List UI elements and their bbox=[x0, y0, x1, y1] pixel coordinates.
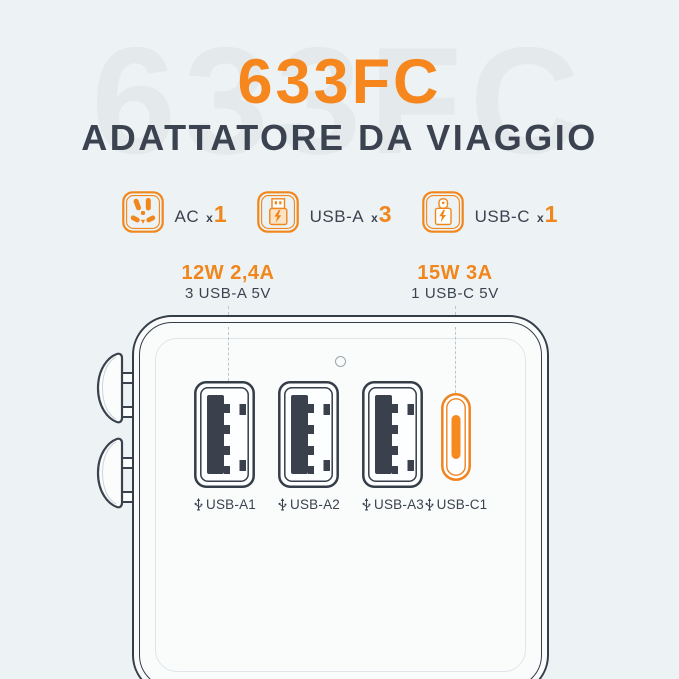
usb-c1-label: USB-C1 bbox=[411, 497, 501, 512]
feature-usb-a-times: x bbox=[371, 211, 378, 225]
usb-c-power: 15W 3A bbox=[355, 262, 555, 284]
usb-trident-icon bbox=[194, 498, 203, 511]
usb-c-icon bbox=[422, 191, 464, 238]
usb-c-leader-line bbox=[455, 327, 456, 393]
usb-a3-port bbox=[362, 381, 423, 493]
usb-a-spec-callout: 12W 2,4A 3 USB-A 5V bbox=[128, 262, 328, 303]
product-infographic: 633FC 633FC ADATTATORE DA VIAGGIO bbox=[0, 0, 679, 679]
feature-usb-c: USB-C x 1 bbox=[422, 191, 558, 238]
feature-usb-c-count: 1 bbox=[545, 201, 558, 228]
usb-a1-port bbox=[194, 381, 255, 493]
usb-c1-port bbox=[441, 393, 471, 486]
usb-a1-label: USB-A1 bbox=[180, 497, 270, 512]
usb-c-spec-callout: 15W 3A 1 USB-C 5V bbox=[355, 262, 555, 303]
status-led bbox=[335, 356, 346, 367]
usb-a2-label: USB-A2 bbox=[264, 497, 354, 512]
feature-usb-a-count: 3 bbox=[379, 201, 392, 228]
usb-trident-icon bbox=[278, 498, 287, 511]
feature-usb-a: USB-A x 3 bbox=[257, 191, 392, 238]
feature-usb-a-label: USB-A bbox=[310, 207, 364, 227]
usb-c-leader-line bbox=[455, 306, 456, 315]
usb-c-detail: 1 USB-C 5V bbox=[355, 285, 555, 303]
feature-badges: AC x 1 USB-A x 3 bbox=[0, 191, 679, 238]
usb-trident-icon bbox=[425, 498, 434, 511]
usb-trident-icon bbox=[362, 498, 371, 511]
usb-a-icon bbox=[257, 191, 299, 238]
usb-a-leader-line bbox=[228, 327, 229, 381]
usb-a-power: 12W 2,4A bbox=[128, 262, 328, 284]
feature-ac: AC x 1 bbox=[122, 191, 227, 238]
feature-ac-label: AC bbox=[175, 207, 200, 227]
feature-usb-c-label: USB-C bbox=[475, 207, 530, 227]
feature-ac-count: 1 bbox=[214, 201, 227, 228]
usb-a-detail: 3 USB-A 5V bbox=[128, 285, 328, 303]
usb-a2-port bbox=[278, 381, 339, 493]
usb-a-leader-line bbox=[228, 306, 229, 315]
ac-outlet-icon bbox=[122, 191, 164, 238]
feature-ac-times: x bbox=[206, 211, 213, 225]
feature-usb-c-times: x bbox=[537, 211, 544, 225]
page-title: 633FC bbox=[0, 46, 679, 118]
page-subtitle: ADATTATORE DA VIAGGIO bbox=[0, 117, 679, 159]
